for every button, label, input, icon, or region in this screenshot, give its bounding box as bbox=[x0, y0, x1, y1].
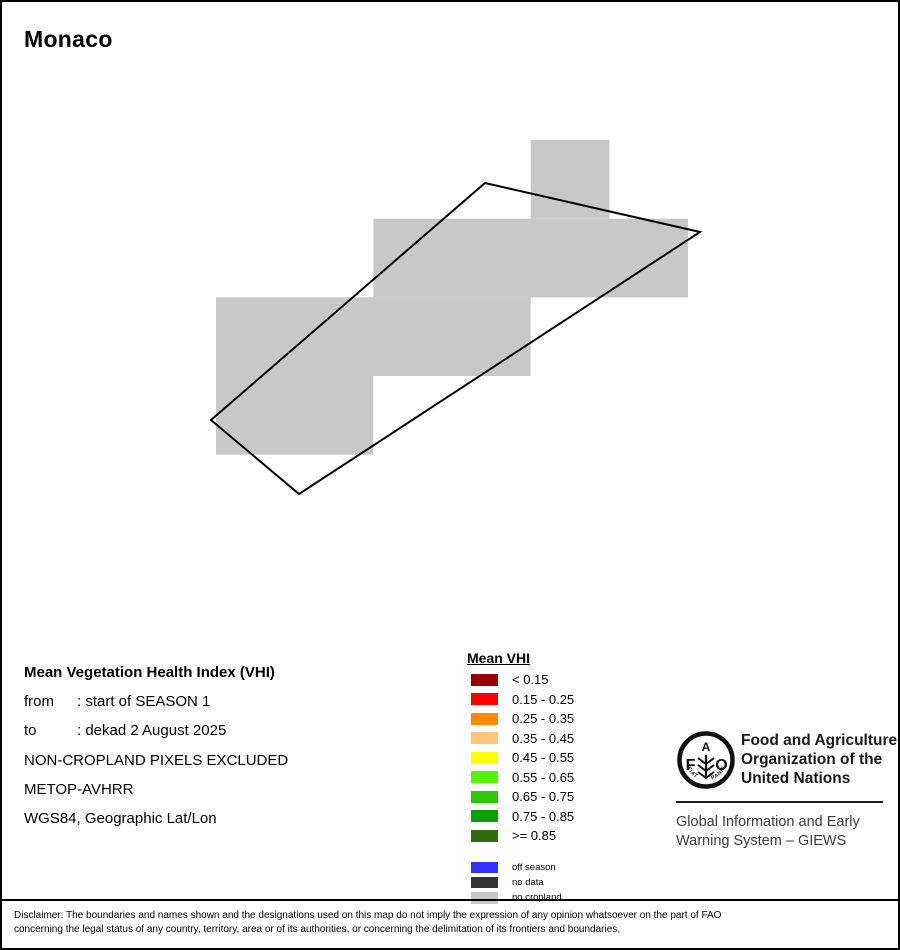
legend-row: 0.45 - 0.55 bbox=[471, 750, 574, 765]
legend-label: off season bbox=[512, 862, 556, 873]
legend-swatch bbox=[471, 771, 498, 783]
legend-row: < 0.15 bbox=[471, 672, 574, 687]
info-to-value: : dekad 2 August 2025 bbox=[77, 722, 226, 739]
info-sensor-line: METOP-AVHRR bbox=[24, 775, 288, 804]
info-to-label: to bbox=[24, 716, 77, 745]
disclaimer-line2: concerning the legal status of any count… bbox=[14, 923, 886, 937]
info-from-value: : start of SEASON 1 bbox=[77, 693, 210, 710]
disclaimer: Disclaimer: The boundaries and names sho… bbox=[2, 899, 898, 948]
page: Monaco Mean Vegetation Health Index (VHI… bbox=[0, 0, 900, 950]
fao-logo: F O A FIAT PANIS bbox=[674, 728, 738, 792]
no-cropland-cell bbox=[216, 297, 531, 376]
vhi-legend: Mean VHI < 0.150.15 - 0.250.25 - 0.350.3… bbox=[467, 650, 574, 907]
giews-line1: Global Information and Early bbox=[676, 813, 860, 832]
legend-label: 0.15 - 0.25 bbox=[512, 692, 574, 707]
map-info-block: Mean Vegetation Health Index (VHI) from:… bbox=[24, 658, 288, 833]
legend-row: 0.25 - 0.35 bbox=[471, 711, 574, 726]
info-from-line: from: start of SEASON 1 bbox=[24, 687, 288, 716]
legend-label: 0.55 - 0.65 bbox=[512, 770, 574, 785]
info-projection-line: WGS84, Geographic Lat/Lon bbox=[24, 804, 288, 833]
fao-divider bbox=[676, 801, 883, 803]
country-boundary-outline bbox=[211, 183, 700, 494]
legend-row: 0.75 - 0.85 bbox=[471, 809, 574, 824]
legend-title: Mean VHI bbox=[467, 650, 574, 666]
legend-swatch bbox=[471, 877, 498, 889]
page-title: Monaco bbox=[24, 26, 113, 53]
no-cropland-cell bbox=[373, 219, 688, 298]
legend-swatch bbox=[471, 810, 498, 822]
disclaimer-line1: Disclaimer: The boundaries and names sho… bbox=[14, 909, 886, 923]
no-cropland-cells bbox=[216, 140, 688, 455]
info-heading: Mean Vegetation Health Index (VHI) bbox=[24, 658, 288, 687]
legend-swatch bbox=[471, 732, 498, 744]
legend-swatch bbox=[471, 674, 498, 686]
legend-row: 0.15 - 0.25 bbox=[471, 692, 574, 707]
no-cropland-cell bbox=[216, 376, 373, 455]
fao-org-line3: United Nations bbox=[741, 769, 897, 788]
legend-swatch bbox=[471, 693, 498, 705]
info-from-label: from bbox=[24, 687, 77, 716]
legend-row: 0.55 - 0.65 bbox=[471, 770, 574, 785]
legend-swatch bbox=[471, 791, 498, 803]
fao-org-line1: Food and Agriculture bbox=[741, 731, 897, 750]
legend-swatch bbox=[471, 830, 498, 842]
other-legend-list: off seasonno datano cropland bbox=[467, 862, 574, 904]
fao-logo-letter-a: A bbox=[702, 740, 711, 754]
info-to-line: to: dekad 2 August 2025 bbox=[24, 716, 288, 745]
legend-row: off season bbox=[471, 862, 574, 874]
legend-label: 0.35 - 0.45 bbox=[512, 731, 574, 746]
legend-swatch bbox=[471, 752, 498, 764]
no-cropland-cell bbox=[531, 140, 610, 219]
legend-label: 0.65 - 0.75 bbox=[512, 789, 574, 804]
legend-label: >= 0.85 bbox=[512, 828, 556, 843]
legend-row: >= 0.85 bbox=[471, 828, 574, 843]
legend-swatch bbox=[471, 862, 498, 874]
legend-row: no data bbox=[471, 877, 574, 889]
legend-label: 0.45 - 0.55 bbox=[512, 750, 574, 765]
legend-label: 0.75 - 0.85 bbox=[512, 809, 574, 824]
legend-row: 0.65 - 0.75 bbox=[471, 789, 574, 804]
legend-swatch bbox=[471, 713, 498, 725]
giews-line2: Warning System – GIEWS bbox=[676, 832, 860, 851]
legend-label: 0.25 - 0.35 bbox=[512, 711, 574, 726]
vhi-legend-list: < 0.150.15 - 0.250.25 - 0.350.35 - 0.450… bbox=[467, 672, 574, 843]
legend-label: no data bbox=[512, 877, 544, 888]
info-noncropland-line: NON-CROPLAND PIXELS EXCLUDED bbox=[24, 746, 288, 775]
fao-org-line2: Organization of the bbox=[741, 750, 897, 769]
fao-org-name: Food and Agriculture Organization of the… bbox=[741, 731, 897, 788]
legend-label: < 0.15 bbox=[512, 672, 549, 687]
legend-row: 0.35 - 0.45 bbox=[471, 731, 574, 746]
giews-name: Global Information and Early Warning Sys… bbox=[676, 813, 860, 850]
